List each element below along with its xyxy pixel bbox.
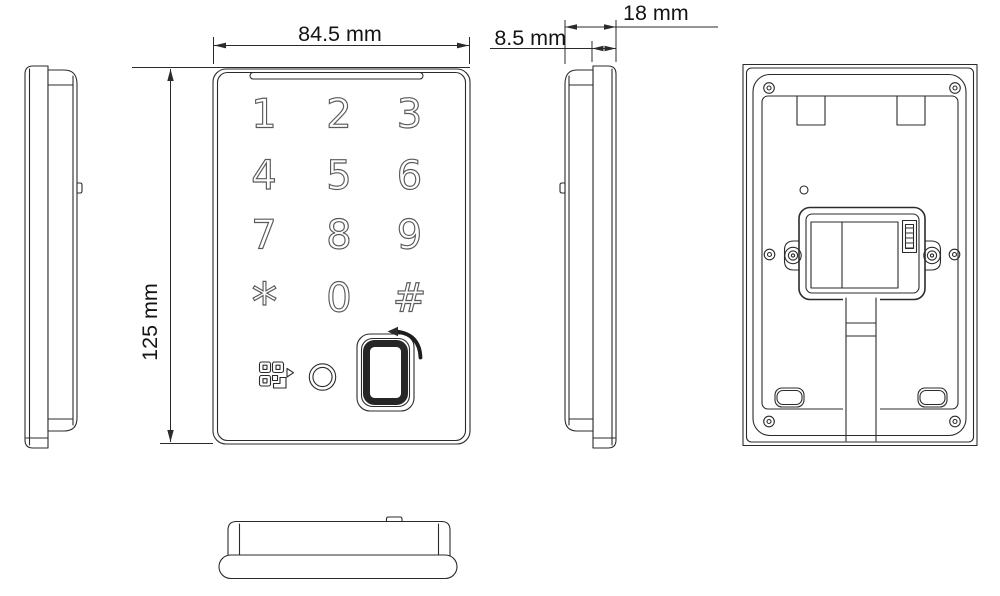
- dimension-drawing-page: 125 mm 84.5 mm 1 2 3 4 5 6 7 8 9 * 0 #: [0, 0, 1000, 596]
- keypad-key-hash: #: [393, 276, 427, 322]
- cable-grommet-tab: [560, 183, 565, 193]
- keypad-key-1: 1: [251, 92, 276, 138]
- keypad-key-star: *: [252, 273, 278, 333]
- width-dimension-label: 84.5 mm: [298, 22, 382, 46]
- drawing-canvas: 125 mm 84.5 mm 1 2 3 4 5 6 7 8 9 * 0 #: [0, 0, 1000, 596]
- bottom-rear-housing: [228, 522, 450, 557]
- dimension-total-depth: 18 mm: [565, 1, 718, 64]
- height-dimension-label: 125 mm: [138, 283, 162, 361]
- keypad-key-0: 0: [326, 276, 351, 322]
- keypad-key-6: 6: [397, 153, 422, 199]
- front-view: 1 2 3 4 5 6 7 8 9 * 0 #: [213, 69, 470, 444]
- dimension-width: 84.5 mm: [214, 22, 470, 64]
- rear-view: [743, 65, 977, 446]
- keypad-key-3: 3: [397, 92, 422, 138]
- keypad-key-2: 2: [326, 92, 351, 138]
- left-side-view: [25, 66, 82, 448]
- bottom-tab: [387, 517, 403, 522]
- total-depth-dimension-label: 18 mm: [623, 1, 689, 25]
- keypad-key-9: 9: [397, 213, 422, 259]
- keypad-key-8: 8: [326, 213, 351, 259]
- side-front-panel: [25, 66, 48, 448]
- bottom-view: [219, 517, 457, 579]
- cable-grommet-tab: [77, 183, 82, 193]
- bottom-front-panel: [219, 555, 457, 579]
- keypad-key-4: 4: [251, 153, 276, 199]
- dimension-front-depth: 8.5 mm: [490, 26, 616, 62]
- right-side-view: [560, 66, 616, 448]
- front-depth-dimension-label: 8.5 mm: [494, 26, 566, 50]
- cable-channel: [843, 296, 880, 441]
- keypad-key-5: 5: [326, 153, 351, 199]
- keypad-key-7: 7: [251, 213, 276, 259]
